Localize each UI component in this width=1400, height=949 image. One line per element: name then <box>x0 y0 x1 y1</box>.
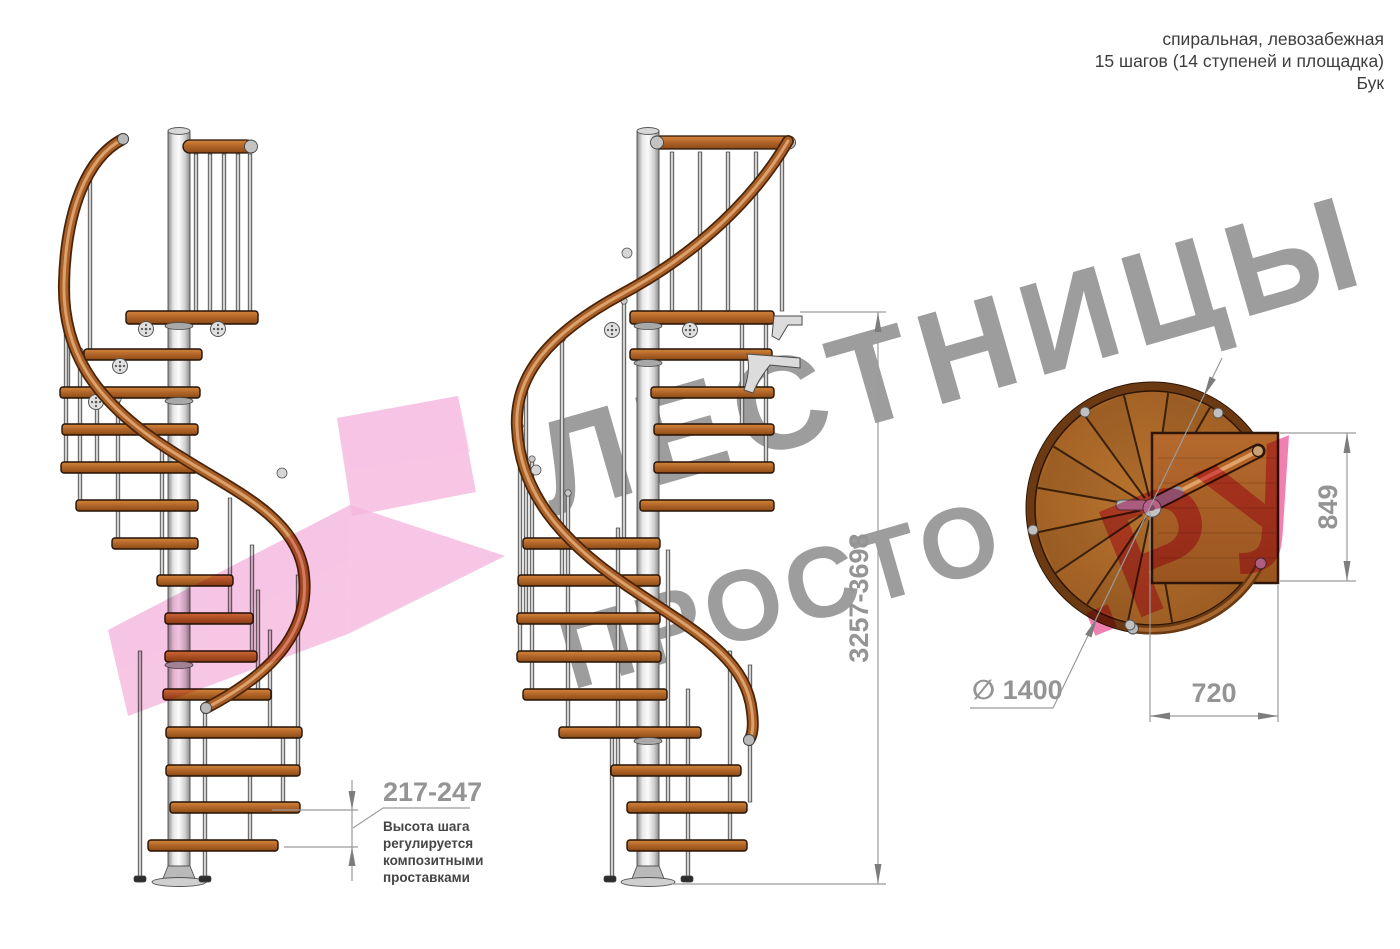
note-line: проставками <box>383 869 483 886</box>
landing-depth-label: 720 <box>1191 678 1236 708</box>
diameter-label: ∅ 1400 <box>972 675 1063 705</box>
title-line-material: Бук <box>1095 72 1384 94</box>
step-height-label: 217-247 <box>383 777 482 807</box>
title-block: спиральная, левозабежная 15 шагов (14 ст… <box>1095 28 1384 94</box>
title-line-steps: 15 шагов (14 ступеней и площадка) <box>1095 50 1384 72</box>
total-height-label: 3257-3698 <box>844 533 874 662</box>
note-line: композитными <box>383 852 483 869</box>
dimensions-layer: 3257-3698 849 720 ∅ 1400 <box>0 0 1400 949</box>
drawing-canvas: ЛЕСТНИЦЫ ПРОСТО <box>0 0 1400 949</box>
note-line: Высота шага <box>383 818 483 835</box>
landing-side-label: 849 <box>1313 484 1343 529</box>
dimension-total-height: 3257-3698 <box>672 312 886 884</box>
step-height-note: Высота шага регулируется композитными пр… <box>383 818 483 886</box>
dimension-landing-side: 849 <box>1280 433 1356 581</box>
dimension-landing-depth: 720 <box>1150 512 1278 722</box>
dimension-diameter: ∅ 1400 <box>970 358 1222 708</box>
note-line: регулируется <box>383 835 483 852</box>
title-line-type: спиральная, левозабежная <box>1095 28 1384 50</box>
